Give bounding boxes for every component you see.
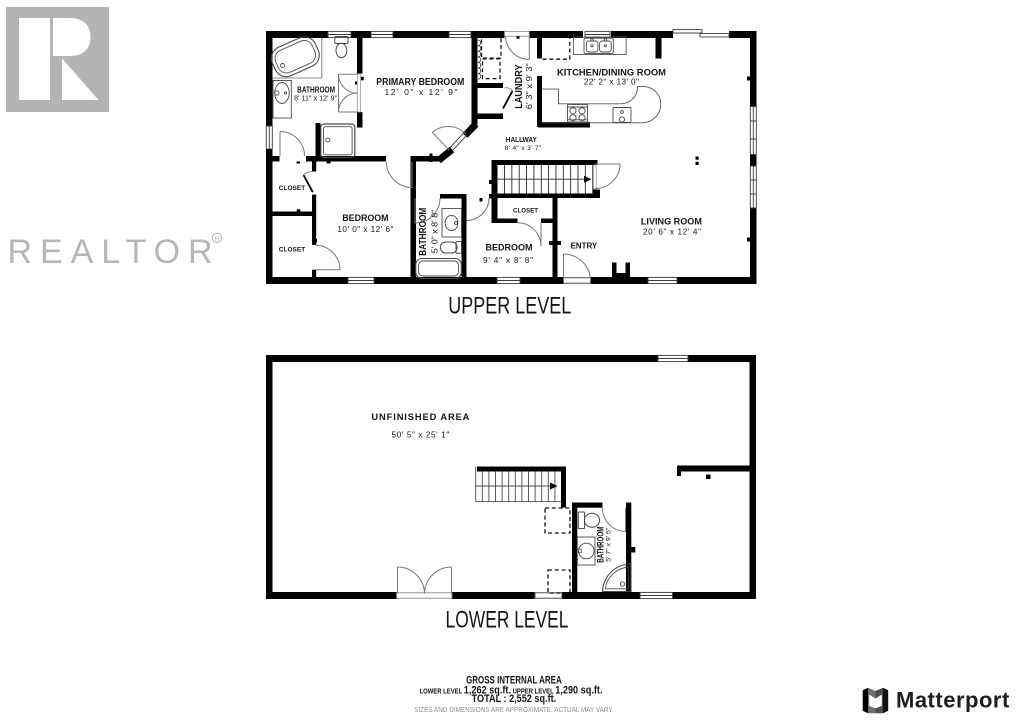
svg-text:22' 2" x 13' 0": 22' 2" x 13' 0" — [584, 78, 639, 87]
svg-text:BATHROOM: BATHROOM — [297, 86, 335, 95]
svg-text:BATHROOM: BATHROOM — [418, 208, 429, 256]
svg-text:ENTRY: ENTRY — [571, 241, 598, 250]
svg-text:BEDROOM: BEDROOM — [486, 242, 533, 252]
svg-text:R: R — [215, 236, 220, 243]
svg-text:LOWER LEVEL: LOWER LEVEL — [446, 607, 569, 634]
svg-text:5' 0" x 8' 8": 5' 0" x 8' 8" — [430, 210, 439, 254]
svg-text:20' 6" x 12' 4": 20' 6" x 12' 4" — [643, 228, 701, 237]
svg-text:TOTAL : 2,552 sq.ft.: TOTAL : 2,552 sq.ft. — [472, 693, 557, 705]
svg-text:CLOSET: CLOSET — [513, 207, 539, 214]
svg-text:8' 4" x 3' 7": 8' 4" x 3' 7" — [505, 145, 542, 152]
svg-text:CLOSET: CLOSET — [279, 185, 306, 192]
svg-text:UPPER LEVEL: UPPER LEVEL — [448, 293, 571, 320]
svg-text:SIZES AND DIMENSIONS ARE APPRO: SIZES AND DIMENSIONS ARE APPROXIMATE, AC… — [414, 707, 613, 714]
svg-text:12' 0" x 12' 9": 12' 0" x 12' 9" — [385, 87, 458, 97]
svg-text:BEDROOM: BEDROOM — [342, 213, 389, 223]
svg-text:BATHROOM: BATHROOM — [595, 527, 605, 563]
svg-text:KITCHEN/DINING ROOM: KITCHEN/DINING ROOM — [557, 67, 666, 77]
svg-text:8' 11" x 12' 9": 8' 11" x 12' 9" — [294, 96, 338, 103]
svg-text:5' 7" x 9' 5": 5' 7" x 9' 5" — [605, 527, 612, 562]
svg-text:UNFINISHED AREA: UNFINISHED AREA — [371, 412, 469, 422]
svg-text:6' 3" x 9' 3": 6' 3" x 9' 3" — [525, 63, 534, 109]
svg-text:CLOSET: CLOSET — [279, 247, 306, 254]
svg-text:Matterport: Matterport — [896, 688, 1010, 713]
svg-text:50' 5" x 25' 1": 50' 5" x 25' 1" — [392, 430, 450, 439]
svg-text:LIVING ROOM: LIVING ROOM — [641, 217, 702, 227]
svg-text:LAUNDRY: LAUNDRY — [514, 64, 525, 109]
svg-text:HALLWAY: HALLWAY — [506, 137, 537, 144]
svg-text:10' 0" x 12' 6": 10' 0" x 12' 6" — [337, 225, 393, 234]
svg-text:9' 4" x 8' 8": 9' 4" x 8' 8" — [483, 256, 533, 265]
